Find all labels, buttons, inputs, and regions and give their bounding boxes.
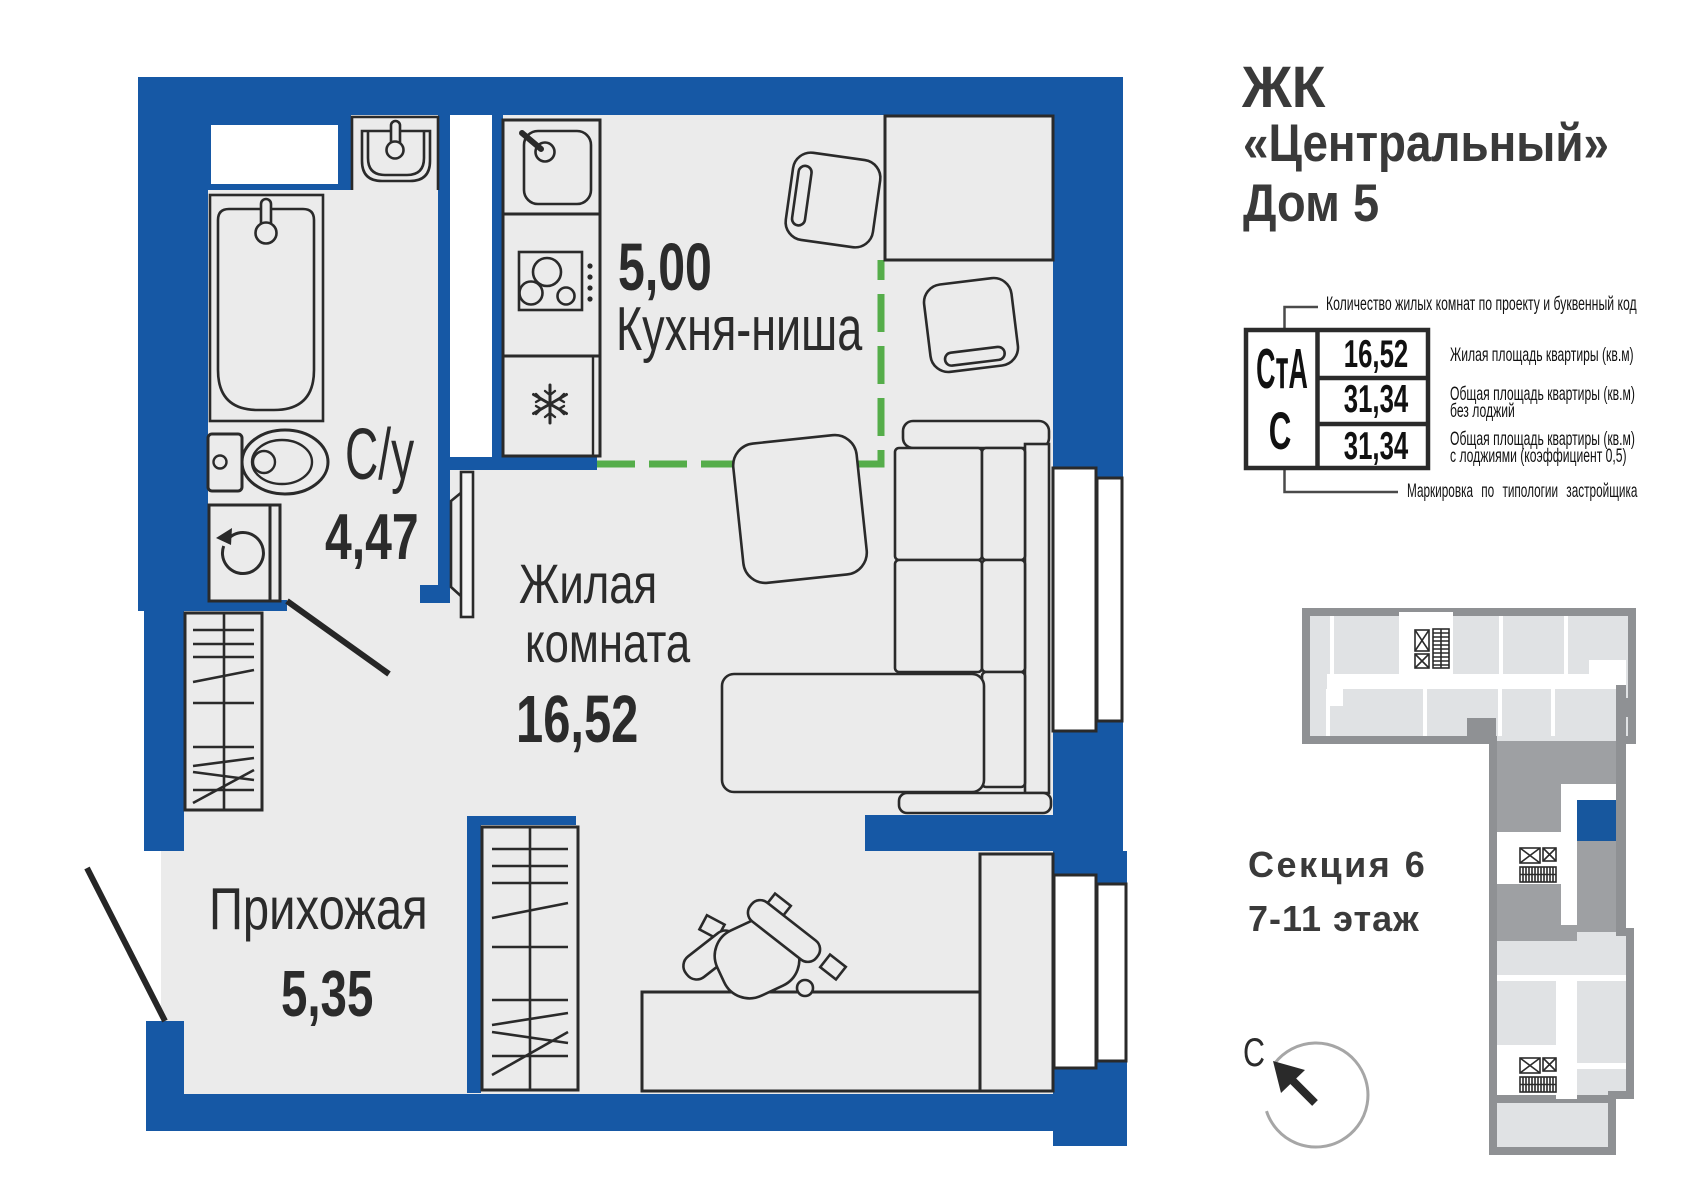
svg-text:5,00: 5,00 — [618, 230, 712, 305]
svg-text:Секция 6: Секция 6 — [1248, 844, 1427, 885]
svg-text:5,35: 5,35 — [281, 958, 373, 1031]
svg-text:Жилая: Жилая — [519, 553, 657, 615]
svg-text:с лоджиями (коэффициент 0,5): с лоджиями (коэффициент 0,5) — [1450, 447, 1627, 467]
svg-text:31,34: 31,34 — [1344, 378, 1409, 422]
svg-text:31,34: 31,34 — [1344, 425, 1409, 469]
svg-text:«Центральный»: «Центральный» — [1243, 114, 1609, 173]
svg-text:без лоджий: без лоджий — [1450, 402, 1515, 422]
svg-text:16,52: 16,52 — [1344, 333, 1408, 377]
svg-text:С: С — [1269, 403, 1292, 461]
svg-text:Прихожая: Прихожая — [209, 877, 428, 942]
svg-text:Маркировка по типологии застро: Маркировка по типологии застройщика — [1407, 481, 1638, 501]
svg-text:4,47: 4,47 — [325, 501, 419, 574]
svg-text:16,52: 16,52 — [516, 683, 638, 757]
svg-text:Жилая площадь квартиры (кв.м): Жилая площадь квартиры (кв.м) — [1450, 346, 1634, 366]
svg-text:комната: комната — [525, 612, 690, 674]
svg-text:Дом 5: Дом 5 — [1243, 173, 1379, 232]
svg-text:С: С — [1243, 1030, 1265, 1075]
svg-text:7-11 этаж: 7-11 этаж — [1248, 898, 1420, 939]
svg-text:С/у: С/у — [345, 413, 415, 494]
svg-text:СтА: СтА — [1256, 338, 1308, 401]
svg-text:Количество жилых комнат по про: Количество жилых комнат по проекту и бук… — [1326, 295, 1637, 315]
svg-text:ЖК: ЖК — [1241, 55, 1326, 120]
svg-text:Кухня-ниша: Кухня-ниша — [616, 295, 863, 364]
